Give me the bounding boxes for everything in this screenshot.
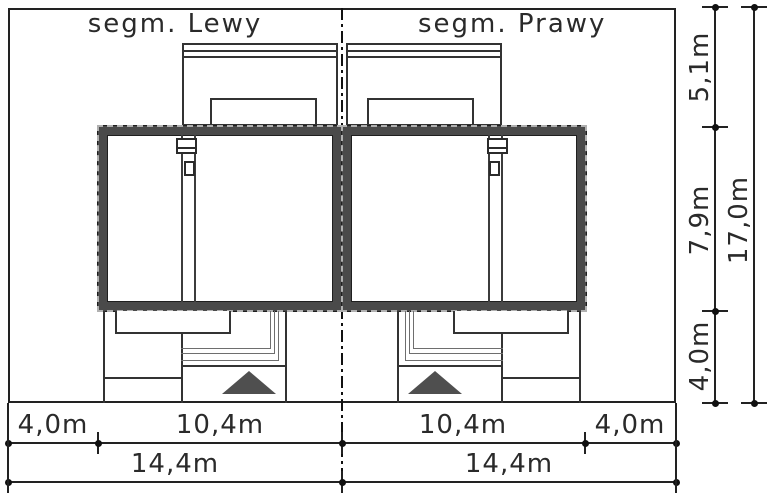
dim-tick: [341, 471, 343, 493]
yard-edge-line: [579, 311, 581, 403]
porch-edge-line: [397, 365, 503, 367]
chimney-small: [184, 161, 195, 176]
segment-left: [98, 8, 342, 403]
yard-divider-line: [103, 377, 183, 379]
dim-label: 7,9m: [685, 185, 715, 256]
dim-tick: [702, 310, 728, 312]
dim-label: 10,4m: [403, 410, 523, 440]
dim-label: 5,1m: [685, 32, 715, 103]
roof-ridge-line: [184, 50, 336, 52]
chimney: [487, 138, 508, 154]
roof-edge-line: [502, 135, 504, 302]
roof-ridge-line: [184, 56, 336, 58]
roof-edge-line: [181, 135, 183, 302]
dim-tick: [97, 432, 99, 454]
dim-tick: [702, 126, 728, 128]
entrance-arrow-icon: [222, 371, 276, 394]
exterior-wall: [342, 126, 586, 311]
dim-tick: [702, 6, 728, 8]
dormer-outline: [210, 98, 317, 129]
dim-label: 4,0m: [13, 410, 93, 440]
dim-label: 14,4m: [449, 449, 569, 479]
dim-label: 14,4m: [115, 449, 235, 479]
porch-edge-line: [181, 365, 287, 367]
dim-tick: [584, 432, 586, 454]
yard-edge-line: [103, 311, 105, 403]
extension-line: [675, 403, 677, 489]
chimney: [176, 138, 197, 154]
site-plan: segm. Lewy segm. Prawy: [0, 0, 770, 501]
roof-ridge-line: [348, 56, 500, 58]
entrance-step-line: [181, 311, 279, 361]
dim-tick: [341, 432, 343, 454]
exterior-wall: [98, 126, 342, 311]
dim-tick: [741, 6, 767, 8]
entrance-step-line: [405, 311, 503, 361]
roof-ridge-line: [348, 50, 500, 52]
segment-right: [342, 8, 586, 403]
dim-tick: [741, 402, 767, 404]
entrance-arrow-icon: [408, 371, 462, 394]
dim-label: 4,0m: [590, 410, 670, 440]
dim-label: 10,4m: [160, 410, 280, 440]
porch-edge-line: [397, 311, 399, 403]
dim-tick: [702, 402, 728, 404]
porch-edge-line: [285, 311, 287, 403]
chimney-small: [489, 161, 500, 176]
dim-label-total: 17,0m: [724, 176, 754, 264]
dormer-outline: [367, 98, 474, 129]
dim-label: 4,0m: [685, 321, 715, 392]
extension-line: [7, 403, 9, 489]
yard-divider-line: [501, 377, 581, 379]
